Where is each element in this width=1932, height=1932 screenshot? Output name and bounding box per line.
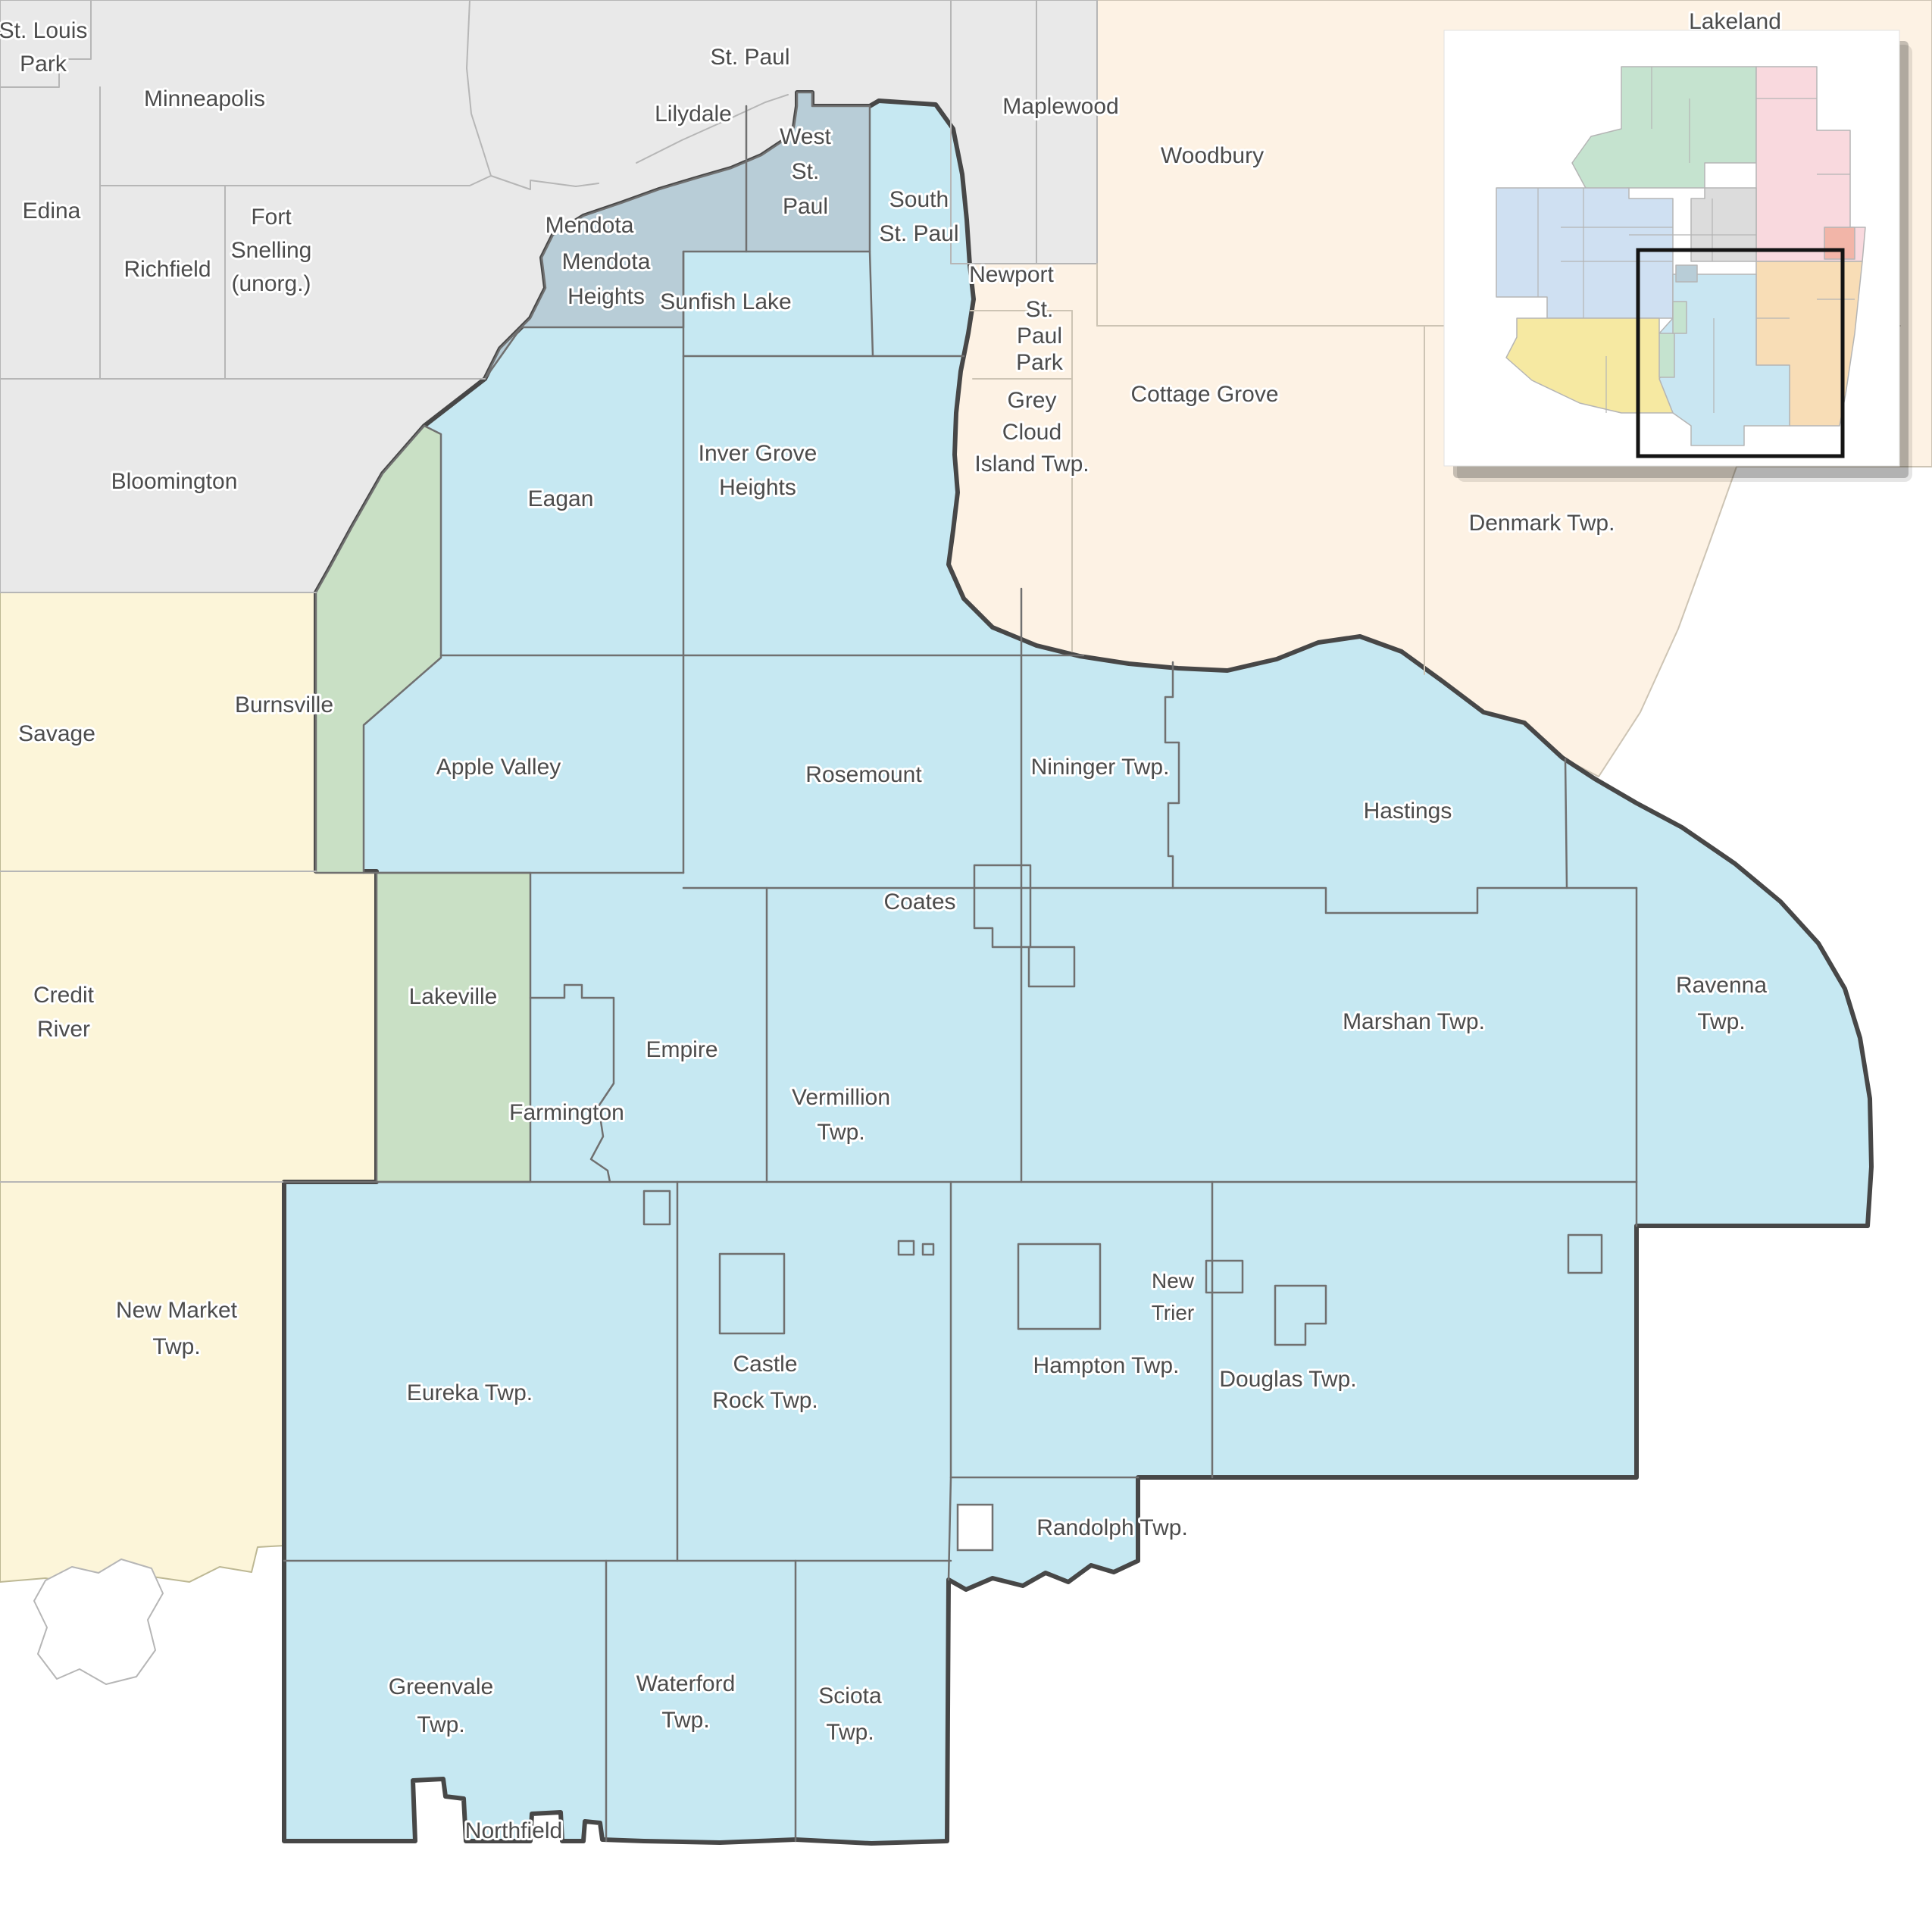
label-denmark: Denmark Twp. [1469,511,1615,536]
inset-lakeville-green [1673,302,1687,333]
label-edina: Edina [23,199,81,224]
label-lilydale: Lilydale [655,102,732,127]
lakeville-region [377,873,530,1182]
label-burnsville: Burnsville [235,692,333,717]
randolph-city-outline [958,1505,993,1550]
label-maplewood: Maplewood [1002,94,1118,119]
label-hastings: Hastings [1364,799,1452,824]
label-st-paul: St. Paul [710,45,789,70]
inset-washington-red-city [1824,227,1855,259]
map-screenshot: St. LouisParkMinneapolisEdinaRichfieldFo… [0,0,1932,1932]
label-douglas: Douglas Twp. [1219,1367,1356,1392]
label-eureka: Eureka Twp. [407,1380,533,1405]
label-newport: Newport [969,262,1054,287]
label-savage: Savage [18,721,95,746]
label-cottage-grove: Cottage Grove [1130,382,1278,407]
label-marshan: Marshan Twp. [1343,1009,1485,1034]
label-coates: Coates [883,889,955,914]
label-mendota: Mendota [546,213,634,238]
dakota-county-map: St. LouisParkMinneapolisEdinaRichfieldFo… [0,0,1932,1932]
label-empire: Empire [646,1037,717,1062]
label-rosemount: Rosemount [805,762,922,787]
inset-burnsville-green [1659,333,1674,377]
label-sunfish-lake: Sunfish Lake [660,289,791,314]
label-bloomington: Bloomington [111,469,238,494]
label-farmington: Farmington [509,1100,624,1125]
label-richfield: Richfield [123,257,211,282]
label-eagan: Eagan [528,486,594,511]
label-lakeville: Lakeville [409,984,498,1009]
label-randolph: Randolph Twp. [1036,1515,1188,1540]
label-nininger: Nininger Twp. [1031,755,1170,780]
inset-mendota-bluegray [1676,265,1697,282]
label-apple-valley: Apple Valley [436,755,561,780]
label-hampton: Hampton Twp. [1033,1353,1180,1378]
label-northfield: Northfield [465,1818,562,1843]
label-minneapolis: Minneapolis [144,86,265,111]
label-woodbury: Woodbury [1161,143,1264,168]
elko-new-market-outline [34,1559,163,1684]
